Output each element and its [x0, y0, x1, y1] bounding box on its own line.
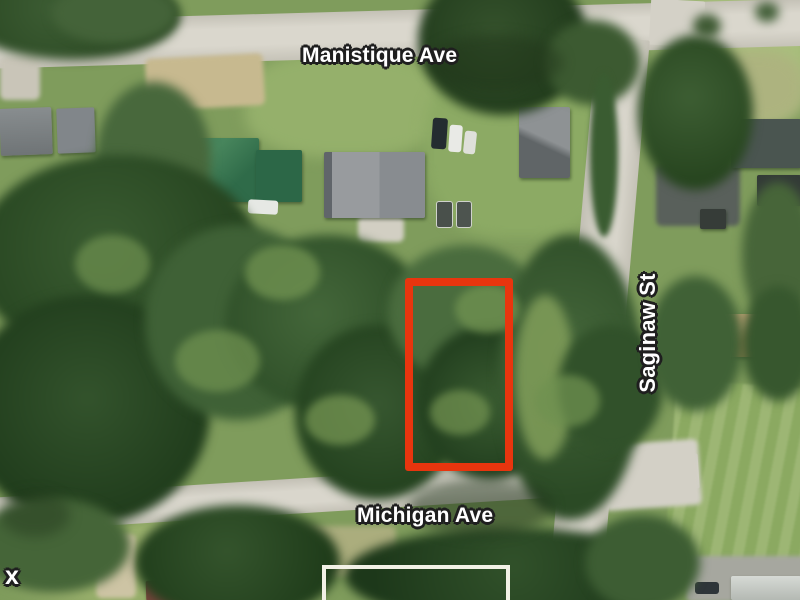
shed-dark [700, 209, 726, 229]
highlighted-parcel-outline [405, 278, 513, 471]
driveway [0, 58, 40, 100]
street-label-saginaw-st: Saginaw St [635, 273, 661, 392]
house-gray-northwest-2 [56, 107, 96, 153]
canopy-highlight [245, 245, 320, 300]
camper-trailer [248, 199, 279, 215]
street-label-manistique-ave: Manistique Ave [302, 44, 457, 68]
car-white [448, 125, 463, 153]
canopy-highlight [535, 375, 600, 427]
tree-cluster [648, 276, 743, 411]
tree-small [755, 2, 779, 22]
partial-edge-label: x [5, 562, 19, 591]
car-white-2 [463, 130, 477, 154]
suv-dark [431, 118, 448, 150]
house-gray-northwest [0, 107, 53, 156]
tree-hedge [590, 72, 618, 237]
canopy-highlight [175, 330, 260, 392]
canopy-highlight [305, 395, 375, 445]
tree-cluster [638, 35, 753, 190]
tree-shadow-on-road [0, 492, 70, 537]
utility-trailer [436, 201, 453, 228]
building-white-southeast [731, 576, 800, 600]
barn-gray-roof [324, 152, 425, 218]
canopy-highlight [75, 235, 150, 293]
house-green-roof-wing [256, 150, 302, 202]
tree-small [693, 14, 721, 38]
street-label-michigan-ave: Michigan Ave [357, 504, 493, 528]
utility-trailer-2 [456, 201, 472, 228]
car-dark-southeast [695, 582, 719, 594]
concrete-pad [358, 216, 404, 242]
aerial-map: Manistique Ave Saginaw St Michigan Ave x [0, 0, 800, 600]
tree-cluster [585, 515, 700, 600]
house-gray-near-corner [519, 107, 570, 178]
secondary-parcel-outline [322, 565, 510, 600]
